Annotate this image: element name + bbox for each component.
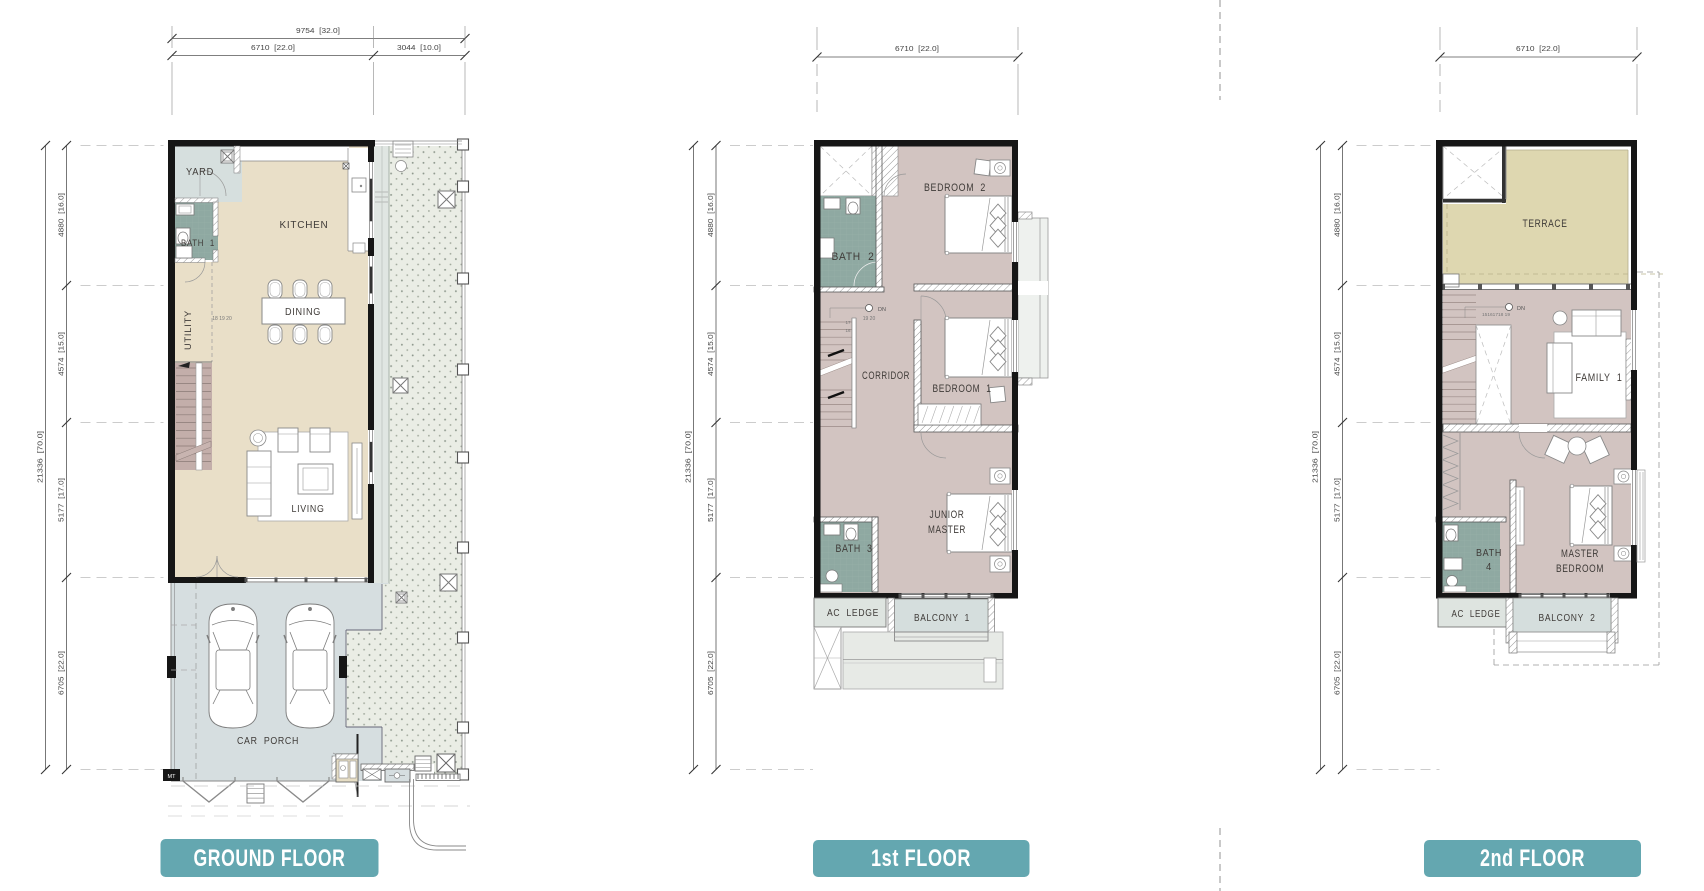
svg-text:BATH: BATH [1476, 547, 1502, 559]
svg-text:5177 [17.0]: 5177 [17.0] [57, 478, 66, 522]
svg-text:MT: MT [168, 774, 177, 780]
svg-text:KITCHEN: KITCHEN [280, 219, 329, 231]
svg-text:BEDROOM: BEDROOM [1556, 563, 1604, 575]
svg-text:2nd FLOOR: 2nd FLOOR [1480, 845, 1585, 872]
svg-text:BEDROOM 1: BEDROOM 1 [933, 383, 992, 395]
svg-text:16: 16 [845, 328, 851, 333]
svg-text:17: 17 [845, 320, 851, 325]
svg-text:4880 [16.0]: 4880 [16.0] [57, 193, 66, 237]
svg-text:6705 [22.0]: 6705 [22.0] [57, 651, 66, 695]
svg-text:5177 [17.0]: 5177 [17.0] [1333, 478, 1342, 522]
svg-text:BALCONY 2: BALCONY 2 [1539, 613, 1596, 624]
svg-text:DN: DN [878, 307, 886, 313]
svg-text:JUNIOR: JUNIOR [930, 509, 965, 521]
svg-text:DINING: DINING [285, 306, 321, 318]
svg-text:6705 [22.0]: 6705 [22.0] [1333, 651, 1342, 695]
svg-text:BATH 3: BATH 3 [836, 543, 873, 555]
svg-text:9754 [32.0]: 9754 [32.0] [296, 26, 340, 35]
svg-text:4574 [15.0]: 4574 [15.0] [57, 332, 66, 376]
svg-text:21336 [70.0]: 21336 [70.0] [36, 431, 45, 483]
svg-text:YARD: YARD [186, 167, 214, 178]
svg-text:21336 [70.0]: 21336 [70.0] [684, 431, 693, 483]
svg-text:5177 [17.0]: 5177 [17.0] [706, 478, 715, 522]
svg-text:21336 [70.0]: 21336 [70.0] [1311, 431, 1320, 483]
svg-text:UTILITY: UTILITY [183, 310, 194, 350]
svg-text:TERRACE: TERRACE [1523, 218, 1568, 230]
svg-text:6705 [22.0]: 6705 [22.0] [706, 651, 715, 695]
svg-text:FAMILY 1: FAMILY 1 [1576, 372, 1623, 384]
svg-text:MASTER: MASTER [1561, 548, 1599, 560]
svg-text:4880 [16.0]: 4880 [16.0] [1333, 193, 1342, 237]
svg-text:4574 [15.0]: 4574 [15.0] [706, 332, 715, 376]
svg-text:DN: DN [1517, 306, 1525, 312]
svg-text:6710 [22.0]: 6710 [22.0] [895, 44, 939, 53]
svg-text:GROUND FLOOR: GROUND FLOOR [194, 845, 346, 872]
svg-text:AC LEDGE: AC LEDGE [1452, 609, 1501, 620]
svg-text:6710 [22.0]: 6710 [22.0] [1516, 44, 1560, 53]
svg-text:BEDROOM 2: BEDROOM 2 [924, 182, 986, 194]
svg-text:6710 [22.0]: 6710 [22.0] [251, 43, 295, 52]
svg-text:BALCONY 1: BALCONY 1 [914, 613, 970, 624]
svg-text:LIVING: LIVING [292, 503, 325, 515]
svg-text:4: 4 [1486, 561, 1492, 573]
svg-text:3044 [10.0]: 3044 [10.0] [397, 43, 441, 52]
svg-text:BATH 2: BATH 2 [832, 251, 875, 263]
svg-text:15161718 19: 15161718 19 [1482, 312, 1510, 318]
svg-text:MASTER: MASTER [928, 524, 966, 536]
svg-text:18 19 20: 18 19 20 [212, 316, 232, 322]
svg-text:1st FLOOR: 1st FLOOR [871, 845, 971, 872]
svg-text:AC LEDGE: AC LEDGE [827, 608, 879, 619]
svg-text:CAR PORCH: CAR PORCH [237, 735, 299, 747]
svg-text:4574 [15.0]: 4574 [15.0] [1333, 332, 1342, 376]
svg-text:4880 [16.0]: 4880 [16.0] [706, 193, 715, 237]
svg-text:CORRIDOR: CORRIDOR [862, 370, 910, 382]
svg-text:19 20: 19 20 [863, 316, 876, 322]
svg-text:BATH 1: BATH 1 [181, 238, 215, 248]
